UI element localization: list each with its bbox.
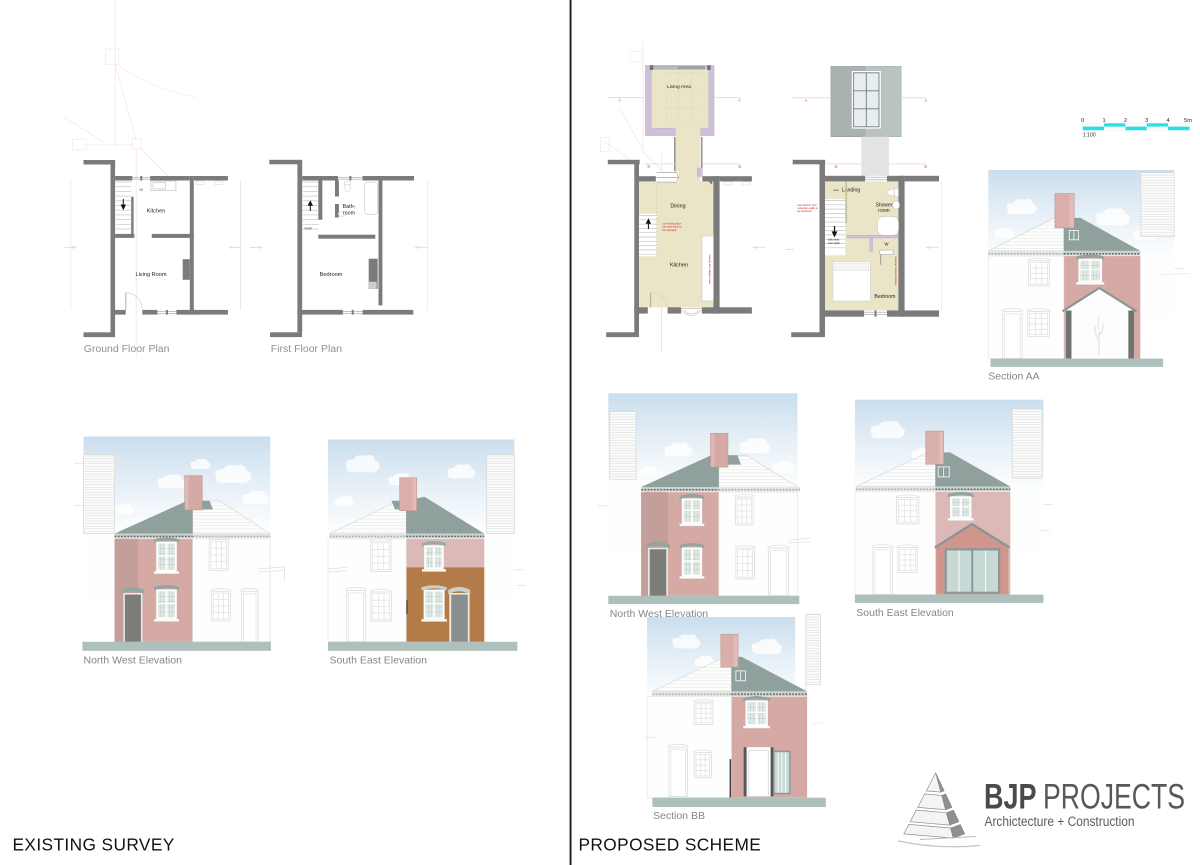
svg-text:be rendered: be rendered	[798, 209, 813, 213]
svg-text:Bedroom: Bedroom	[320, 272, 343, 278]
svg-text:3: 3	[1145, 118, 1148, 124]
svg-text:Bedroom: Bedroom	[874, 294, 895, 300]
svg-text:Section BB: Section BB	[653, 810, 705, 822]
svg-text:5m: 5m	[1184, 118, 1192, 124]
svg-text:B: B	[924, 164, 927, 169]
svg-text:new rooflight over kitchen: new rooflight over kitchen	[708, 254, 712, 284]
svg-text:existing window retained: existing window retained	[894, 256, 898, 285]
svg-text:2: 2	[1124, 118, 1127, 124]
svg-text:Living Area: Living Area	[667, 84, 691, 90]
svg-text:North West Elevation: North West Elevation	[84, 655, 183, 667]
svg-text:the stairwell: the stairwell	[663, 228, 677, 232]
svg-text:room: room	[343, 211, 356, 217]
svg-text:South East Elevation: South East Elevation	[856, 607, 954, 619]
svg-text:over stairs: over stairs	[828, 241, 841, 245]
svg-text:room: room	[878, 208, 889, 214]
svg-text:Kitchen: Kitchen	[147, 208, 166, 214]
svg-text:Ground Floor Plan: Ground Floor Plan	[84, 343, 170, 355]
svg-text:Section AA: Section AA	[988, 371, 1039, 383]
svg-text:Bath-: Bath-	[343, 204, 356, 210]
svg-text:Dining: Dining	[670, 203, 685, 209]
svg-text:up: up	[140, 188, 144, 192]
svg-text:1: 1	[1102, 118, 1105, 124]
svg-text:First Floor Plan: First Floor Plan	[271, 343, 342, 355]
svg-text:Kitchen: Kitchen	[670, 263, 688, 269]
svg-text:4: 4	[1166, 118, 1169, 124]
svg-text:B: B	[834, 164, 837, 169]
svg-text:W: W	[885, 241, 889, 246]
svg-text:1:100: 1:100	[1083, 133, 1096, 139]
svg-text:PROPOSED SCHEME: PROPOSED SCHEME	[579, 835, 762, 855]
svg-text:South East Elevation: South East Elevation	[330, 655, 428, 667]
svg-text:B: B	[738, 164, 741, 169]
svg-text:EXISTING SURVEY: EXISTING SURVEY	[13, 835, 175, 855]
svg-text:Landing: Landing	[842, 188, 861, 194]
svg-text:down: down	[305, 227, 313, 231]
svg-text:Living Room: Living Room	[135, 272, 166, 278]
svg-text:PROJECTS: PROJECTS	[1043, 777, 1185, 817]
svg-text:Archictecture + Construction: Archictecture + Construction	[985, 814, 1135, 830]
svg-text:B: B	[647, 164, 650, 169]
svg-text:BJP: BJP	[984, 777, 1037, 817]
svg-text:0: 0	[1081, 118, 1084, 124]
svg-text:down: down	[833, 189, 839, 192]
